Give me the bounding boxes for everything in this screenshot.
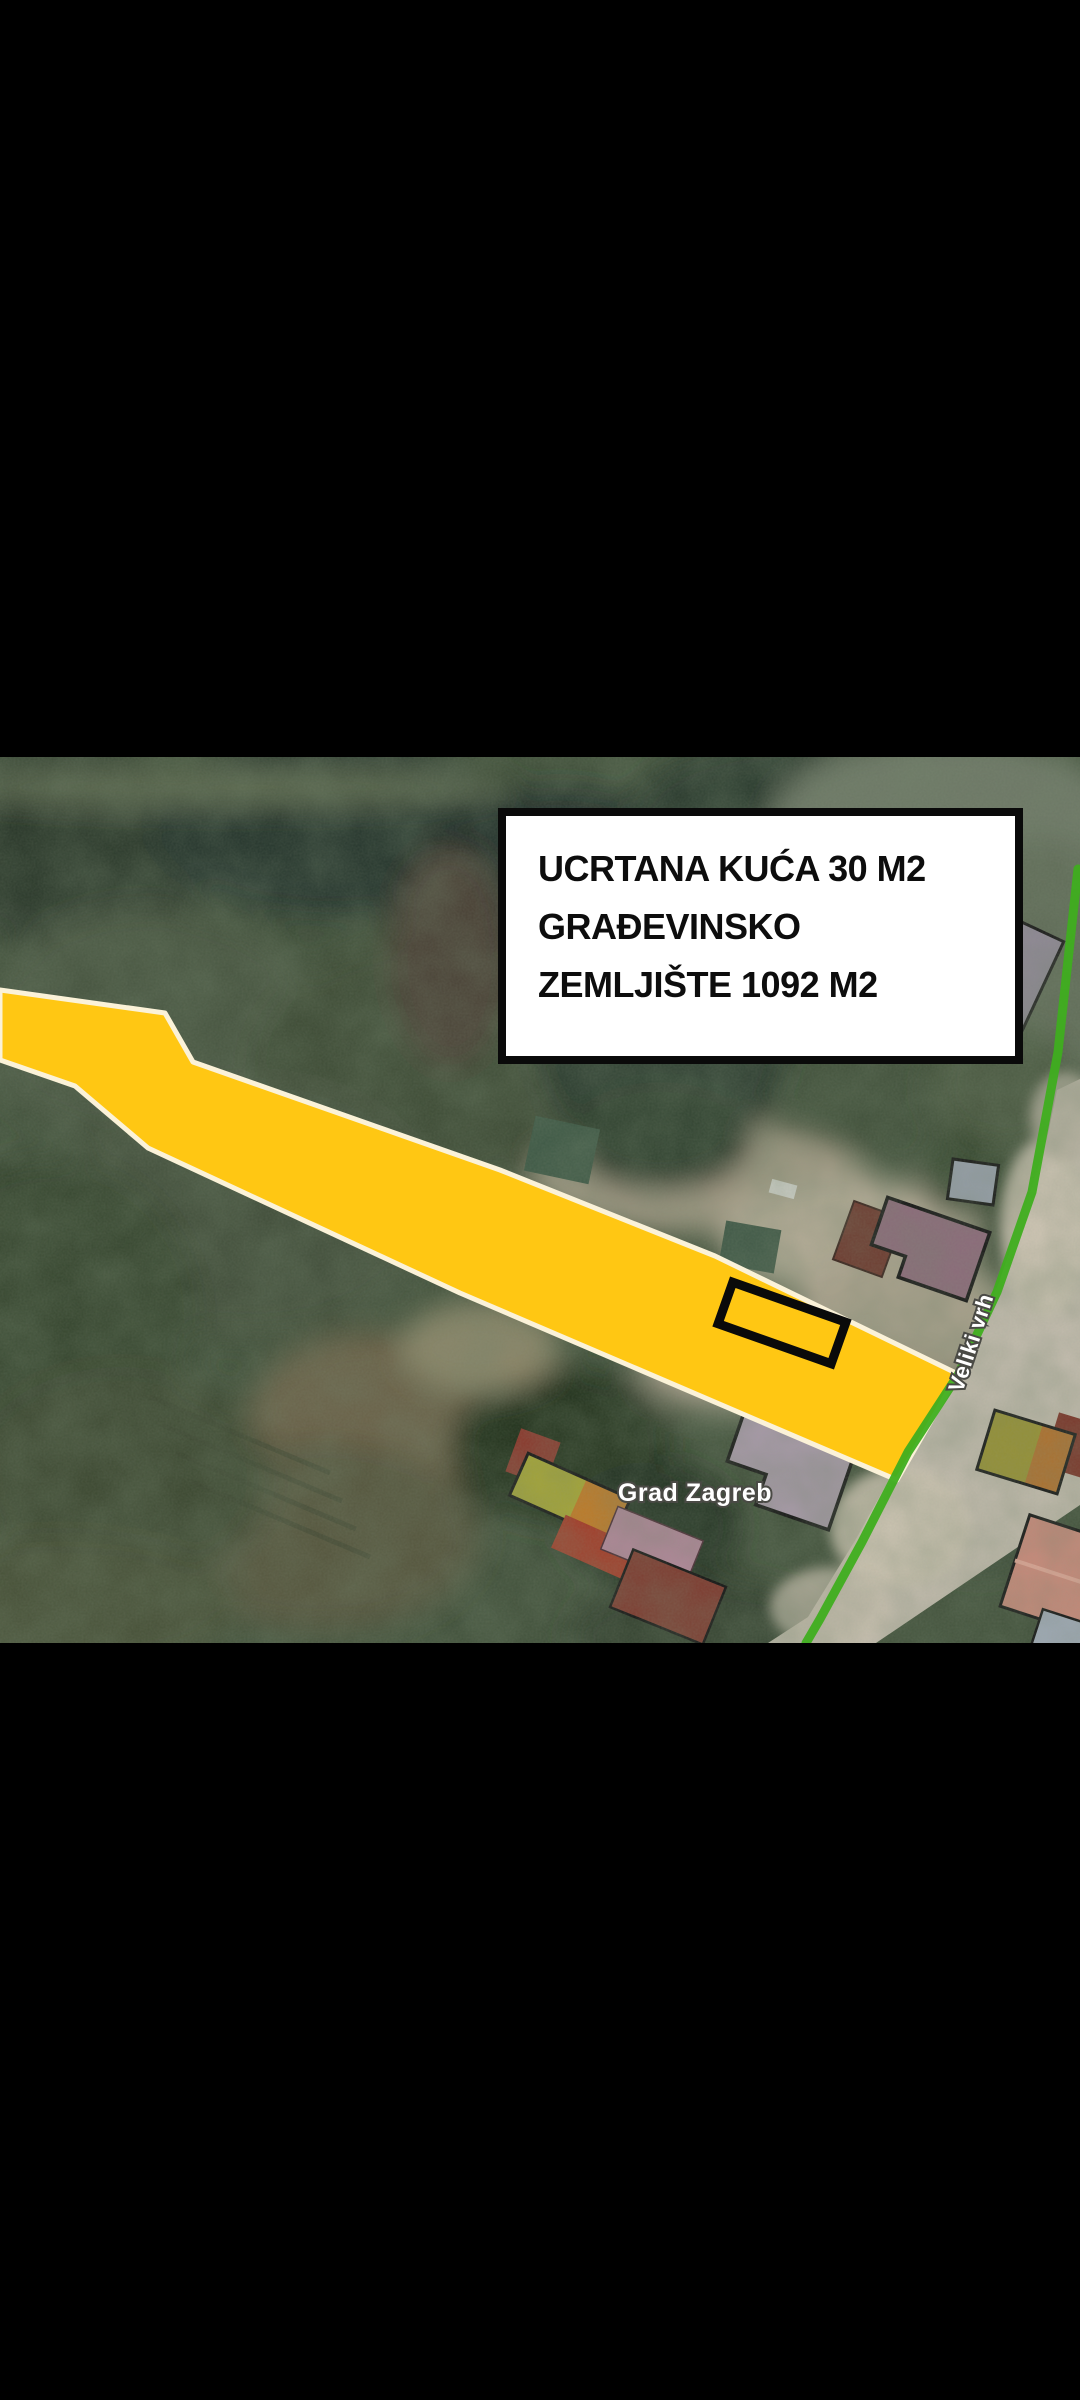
annotation-box: UCRTANA KUĆA 30 M2 GRAĐEVINSKO ZEMLJIŠTE… [498,808,1023,1064]
letterbox-bottom [0,1643,1080,2400]
annotation-line-1: UCRTANA KUĆA 30 M2 [538,840,1007,898]
letterbox-top [0,0,1080,757]
satellite-map: Grad Zagreb Veliki vrh UCRTANA KUĆA 30 M… [0,757,1080,1643]
map-label-city: Grad Zagreb [618,1479,772,1507]
annotation-line-3: ZEMLJIŠTE 1092 M2 [538,956,1007,1014]
annotation-line-2: GRAĐEVINSKO [538,898,1007,956]
screen: Grad Zagreb Veliki vrh UCRTANA KUĆA 30 M… [0,0,1080,2400]
